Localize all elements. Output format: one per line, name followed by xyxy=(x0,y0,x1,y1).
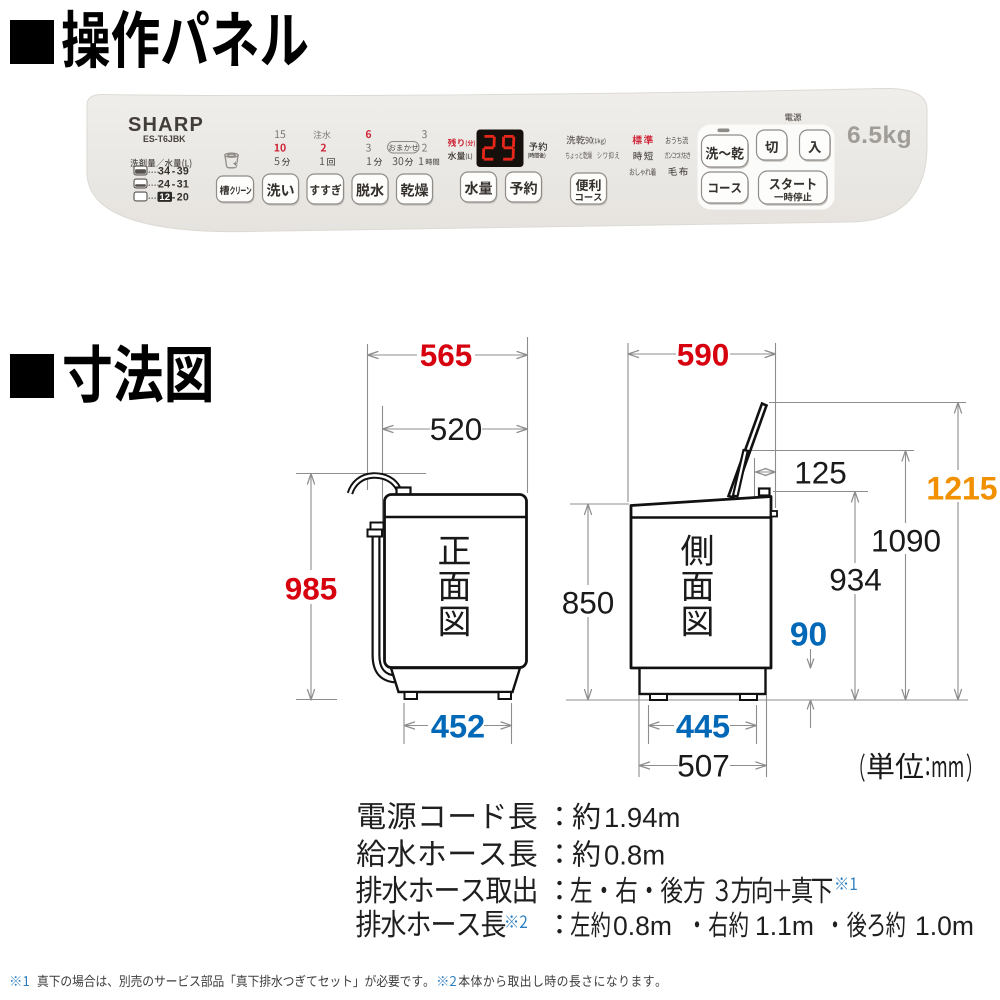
svg-text:590: 590 xyxy=(677,337,730,373)
svg-text:24: 24 xyxy=(158,179,170,191)
svg-text:445: 445 xyxy=(676,709,730,745)
svg-text:1.1m: 1.1m xyxy=(755,911,814,941)
svg-text:39: 39 xyxy=(177,166,189,178)
svg-text:6.5kg: 6.5kg xyxy=(847,122,912,149)
svg-text:0.8m: 0.8m xyxy=(604,840,665,871)
svg-text:-: - xyxy=(172,179,176,191)
svg-text:520: 520 xyxy=(430,411,483,447)
svg-text:-: - xyxy=(172,192,176,204)
svg-text:452: 452 xyxy=(431,709,485,745)
svg-text:985: 985 xyxy=(285,571,338,607)
svg-text:850: 850 xyxy=(562,585,615,621)
svg-text:ES-T6JBK: ES-T6JBK xyxy=(143,134,186,144)
svg-text:934: 934 xyxy=(829,562,882,598)
svg-text:1.0m: 1.0m xyxy=(915,911,974,941)
svg-text:1090: 1090 xyxy=(871,523,941,559)
svg-text:SHARP: SHARP xyxy=(128,114,204,136)
svg-text:1.94m: 1.94m xyxy=(604,802,680,833)
svg-text:34: 34 xyxy=(158,166,170,178)
svg-text:12: 12 xyxy=(159,192,170,203)
svg-text:-: - xyxy=(172,166,176,178)
svg-text:90: 90 xyxy=(790,617,827,654)
svg-text:125: 125 xyxy=(794,455,847,491)
svg-text:0.8m: 0.8m xyxy=(613,911,672,941)
svg-text:565: 565 xyxy=(420,337,473,373)
svg-text:31: 31 xyxy=(177,179,189,191)
svg-text:20: 20 xyxy=(177,192,189,204)
svg-text:1215: 1215 xyxy=(926,471,997,507)
svg-text:507: 507 xyxy=(677,748,730,784)
